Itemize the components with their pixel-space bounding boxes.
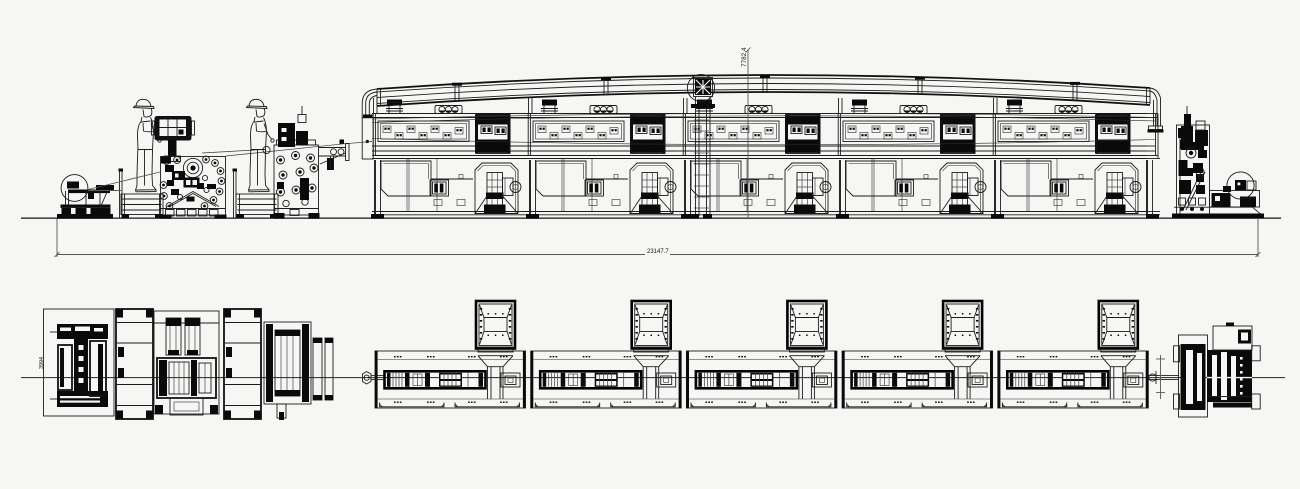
svg-text:23147.7: 23147.7	[647, 249, 669, 255]
svg-text:3994: 3994	[39, 357, 45, 369]
svg-text:7782.4: 7782.4	[741, 47, 748, 67]
